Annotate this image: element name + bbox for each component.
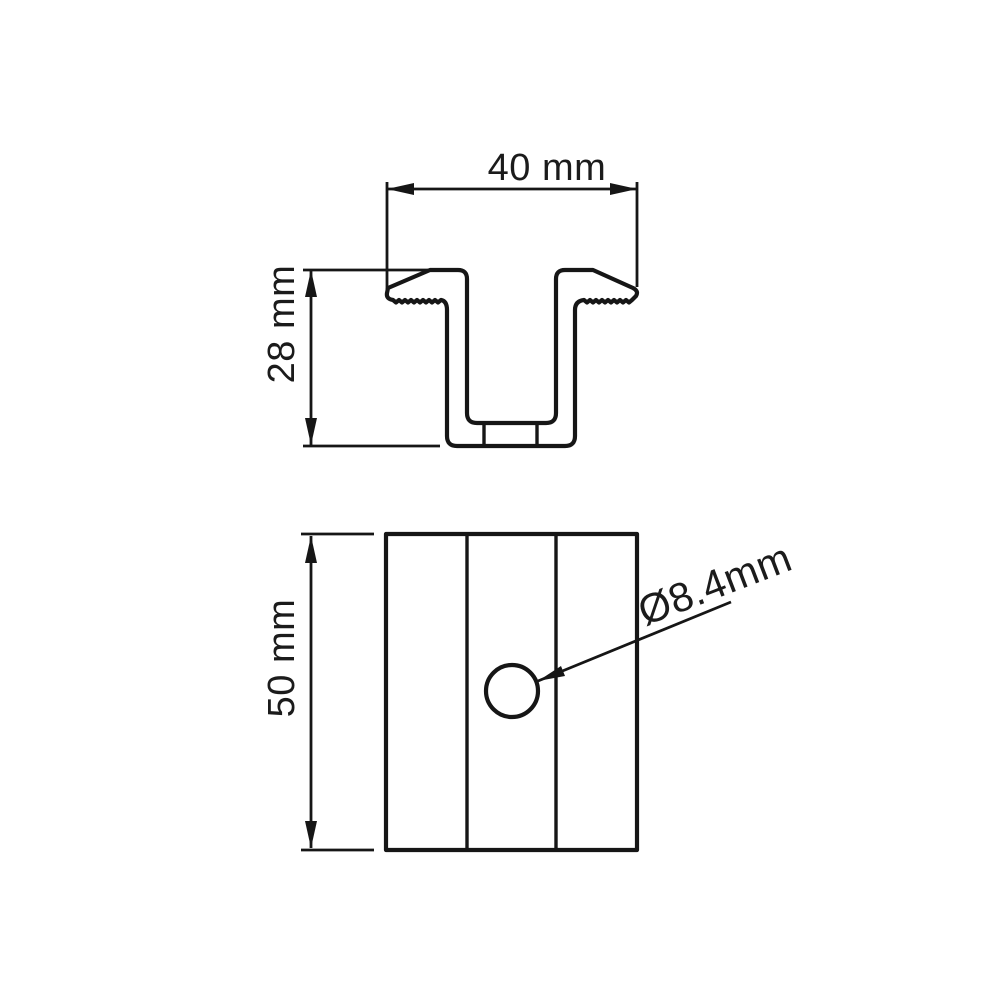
- technical-drawing: 40 mm 28 mm: [0, 0, 1001, 1001]
- leader-arrowhead: [538, 666, 565, 681]
- dimension-height-28mm: 28 mm: [261, 265, 440, 446]
- drawing-canvas: 40 mm 28 mm: [0, 0, 1001, 1001]
- top-view-cross-section: 40 mm 28 mm: [261, 147, 637, 446]
- dimension-label-length: 50 mm: [261, 599, 303, 718]
- dimension-label-width: 40 mm: [488, 147, 607, 189]
- hole-diameter-callout: Ø8.4mm: [538, 534, 798, 681]
- arrowhead-top: [305, 270, 317, 297]
- dimension-label-height: 28 mm: [261, 265, 303, 384]
- dimension-width-40mm: 40 mm: [387, 147, 637, 290]
- dimension-length-50mm: 50 mm: [261, 534, 374, 850]
- hole-diameter-label: Ø8.4mm: [632, 534, 798, 634]
- arrowhead-left: [387, 183, 414, 195]
- channel-edge-lines: [467, 534, 556, 850]
- bottom-view-plan: 50 mm Ø8.4mm: [261, 534, 798, 850]
- arrowhead-top: [305, 536, 317, 563]
- arrowhead-bottom: [305, 418, 317, 445]
- clamp-profile-outline: [387, 270, 637, 446]
- arrowhead-right: [610, 183, 637, 195]
- arrowhead-bottom: [305, 821, 317, 848]
- leader-line: [538, 602, 731, 681]
- hole-section-edges: [484, 423, 537, 446]
- clamp-body-rect: [386, 534, 637, 850]
- bolt-hole-circle: [486, 665, 538, 717]
